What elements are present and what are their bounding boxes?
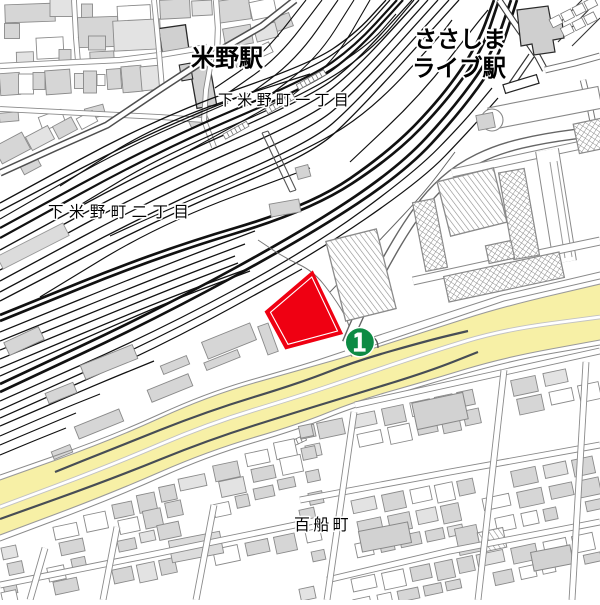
svg-text:百船町: 百船町 [294,516,352,534]
svg-text:米野駅: 米野駅 [191,45,263,72]
svg-text:ささしま: ささしま [414,26,506,52]
svg-text:下米野町一丁目: 下米野町一丁目 [218,92,353,109]
svg-text:下米野町二丁目: 下米野町二丁目 [48,203,194,221]
svg-text:ライブ駅: ライブ駅 [412,54,506,81]
